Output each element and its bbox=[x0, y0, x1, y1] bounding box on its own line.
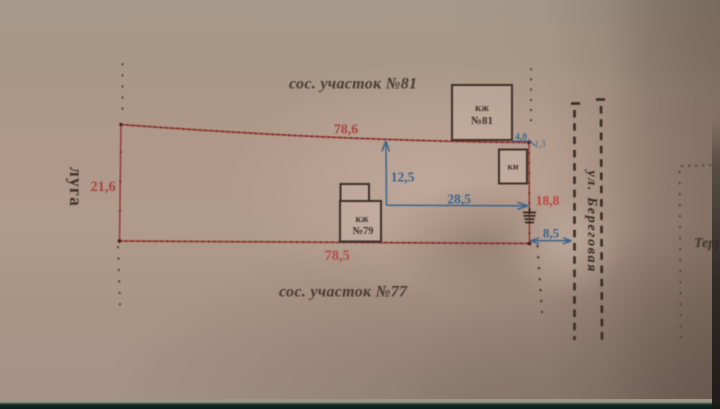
svg-text:78,5: 78,5 bbox=[324, 248, 349, 264]
svg-text:28,5: 28,5 bbox=[447, 192, 471, 207]
svg-text:сос. участок №77: сос. участок №77 bbox=[279, 284, 408, 301]
svg-text:1,3: 1,3 bbox=[534, 139, 546, 149]
svg-text:луга: луга bbox=[66, 167, 86, 207]
svg-text:кж: кж bbox=[475, 103, 489, 114]
svg-text:12,5: 12,5 bbox=[391, 170, 415, 185]
svg-text:сос. участок №81: сос. участок №81 bbox=[289, 76, 417, 93]
svg-text:8,5: 8,5 bbox=[543, 226, 560, 241]
svg-text:21,6: 21,6 bbox=[90, 179, 115, 195]
svg-text:№81: №81 bbox=[471, 115, 493, 127]
svg-text:кн: кн bbox=[508, 163, 519, 173]
svg-text:кж: кж bbox=[355, 214, 369, 225]
svg-text:78,6: 78,6 bbox=[334, 123, 359, 138]
svg-text:ул. Береговая: ул. Береговая bbox=[584, 169, 599, 272]
svg-text:№79: №79 bbox=[352, 226, 373, 237]
svg-text:18,8: 18,8 bbox=[536, 193, 560, 208]
